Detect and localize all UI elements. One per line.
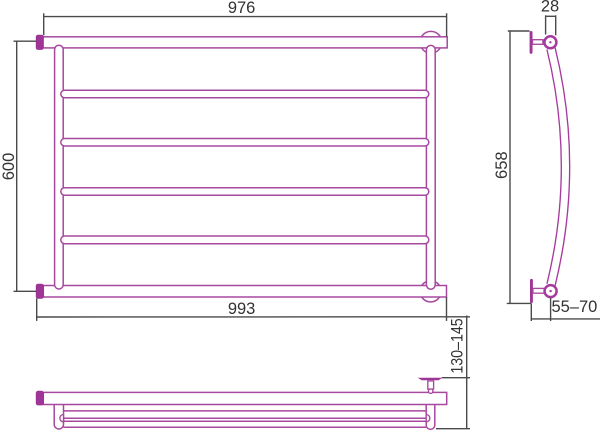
svg-text:600: 600 bbox=[0, 153, 18, 181]
svg-text:658: 658 bbox=[493, 151, 511, 179]
svg-text:976: 976 bbox=[228, 0, 256, 17]
svg-text:130–145: 130–145 bbox=[449, 318, 467, 373]
svg-text:28: 28 bbox=[541, 0, 559, 16]
svg-text:55–70: 55–70 bbox=[551, 298, 597, 316]
svg-text:993: 993 bbox=[228, 300, 256, 318]
